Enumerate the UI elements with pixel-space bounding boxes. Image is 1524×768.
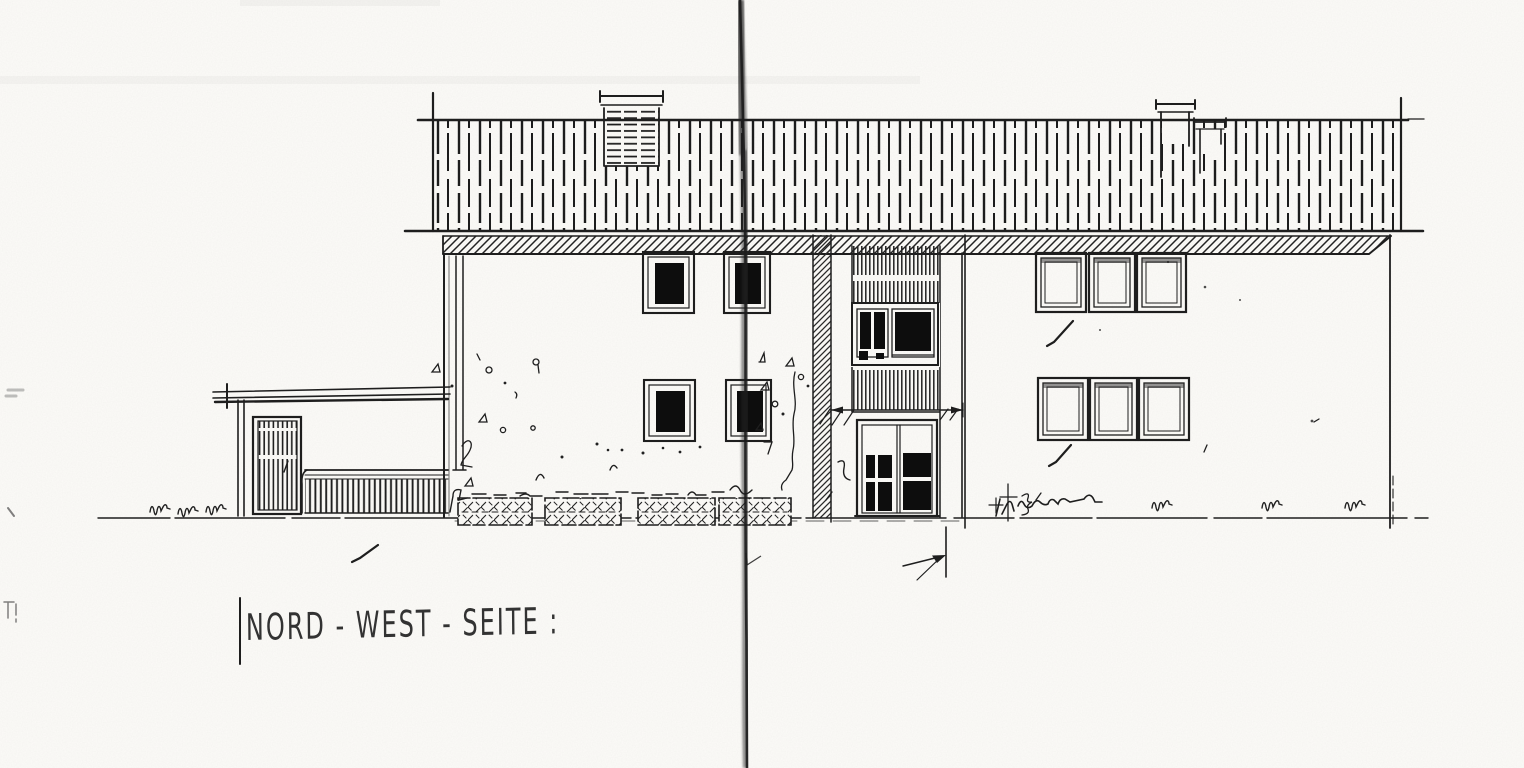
- paper-noise: [0, 0, 1524, 768]
- scanned-blueprint-page: NORD - WEST - SEITE :: [0, 0, 1524, 768]
